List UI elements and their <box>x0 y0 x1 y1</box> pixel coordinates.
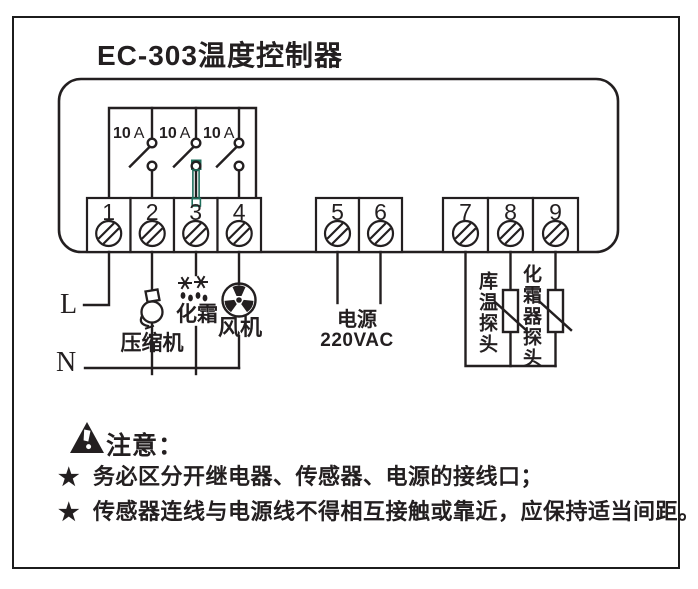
room-probe-label: 库温探头 <box>476 271 496 371</box>
relay-switch-assembly <box>109 108 256 198</box>
breaker-rating-3: 10A <box>203 126 234 142</box>
defrost-icon <box>179 277 207 301</box>
supply-label: 电源 <box>317 310 397 330</box>
fan-label: 风机 <box>210 317 270 339</box>
neutral-label: N <box>56 349 76 377</box>
live-label: L <box>60 291 77 319</box>
terminal-8: 8 <box>496 201 526 224</box>
defroster-probe-label: 化霜器探头 <box>520 264 540 384</box>
notice-item-2: ★传感器连线与电源线不得相互接触或靠近，应保持适当间距。 <box>58 501 698 525</box>
relay-enclosure <box>109 108 256 198</box>
switch1-blade <box>130 148 149 167</box>
compressor-label: 压缩机 <box>112 333 192 354</box>
terminal-5: 5 <box>323 201 353 224</box>
notice-text: 传感器连线与电源线不得相互接触或靠近，应保持适当间距。 <box>93 499 698 524</box>
wiring-diagram-page: EC-303温度控制器 <box>0 0 698 589</box>
breaker-unit: A <box>224 125 235 142</box>
breaker-rating-1: 10A <box>113 126 144 142</box>
compressor-branch <box>141 252 163 374</box>
switch3-blade <box>217 148 236 167</box>
terminal-3: 3 <box>181 201 211 224</box>
thermistor-icon <box>540 290 571 332</box>
breaker-unit: A <box>180 125 191 142</box>
warning-icon <box>70 422 104 453</box>
live-wire <box>84 252 109 305</box>
compressor-icon <box>141 290 163 329</box>
switch2-blade <box>174 148 193 167</box>
notice-item-1: ★务必区分开继电器、传感器、电源的接线口； <box>58 466 543 490</box>
fan-branch <box>223 252 256 368</box>
breaker-amp: 10 <box>203 125 221 142</box>
breaker-unit: A <box>134 125 145 142</box>
notice-heading: 注意： <box>106 426 184 462</box>
terminal-6: 6 <box>366 201 396 224</box>
terminal-7: 7 <box>451 201 481 224</box>
terminal-4: 4 <box>224 201 254 224</box>
supply-voltage: 220VAC <box>313 331 401 350</box>
terminal-1: 1 <box>94 201 124 224</box>
breaker-amp: 10 <box>113 125 131 142</box>
breaker-amp: 10 <box>159 125 177 142</box>
terminal-2: 2 <box>137 201 167 224</box>
terminal-9: 9 <box>541 201 571 224</box>
notice-text: 务必区分开继电器、传感器、电源的接线口； <box>93 464 543 489</box>
fan-icon <box>223 284 256 317</box>
star-bullet-icon: ★ <box>58 464 80 491</box>
star-bullet-icon: ★ <box>58 499 80 526</box>
breaker-rating-2: 10A <box>159 126 190 142</box>
